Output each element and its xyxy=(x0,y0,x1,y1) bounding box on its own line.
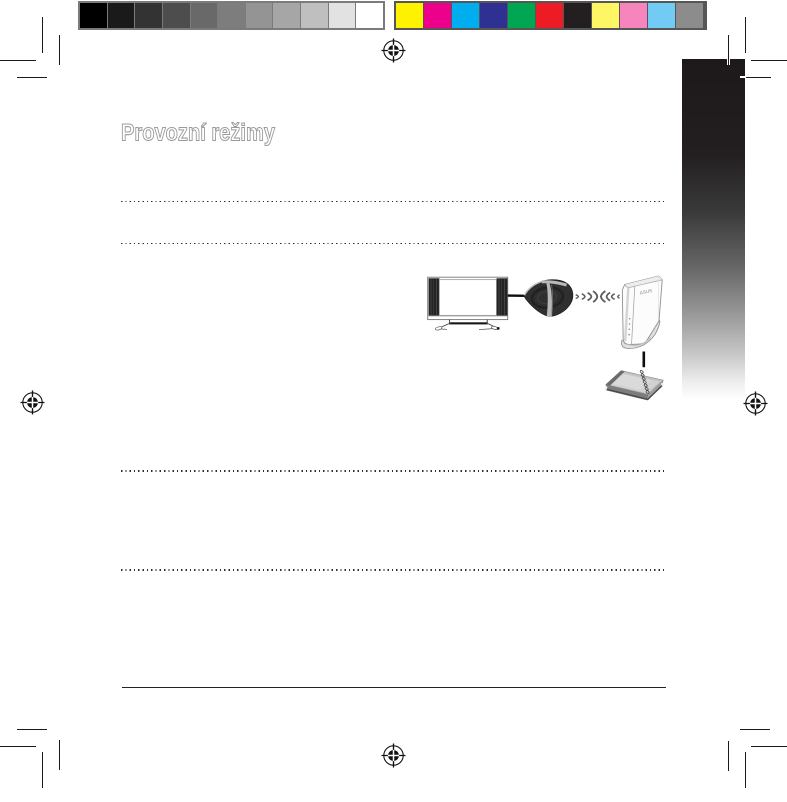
svg-text:Provozní režimy: Provozní režimy xyxy=(121,120,276,147)
